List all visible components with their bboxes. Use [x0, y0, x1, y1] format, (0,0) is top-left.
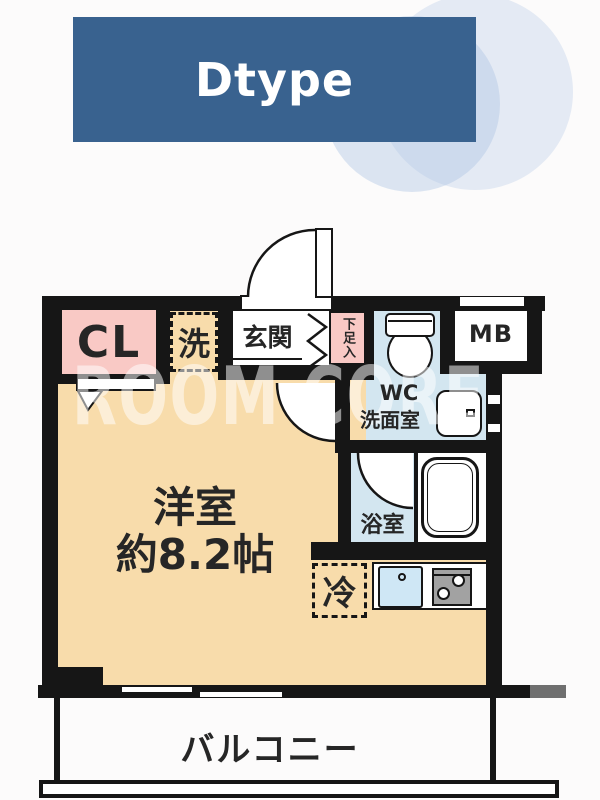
plan-type-banner: Dtype: [73, 17, 476, 142]
wall-bathroom-left: [338, 440, 351, 542]
stove-burner-icon: [437, 587, 450, 600]
side-window-slit-upper: [488, 395, 500, 404]
entrance-label: 玄関: [233, 318, 302, 354]
toilet-tank-line: [388, 320, 432, 322]
stove-edge-line: [434, 574, 470, 576]
meter-box-door-slit: [460, 297, 524, 306]
entrance-door-swing: [248, 230, 315, 297]
balcony-wall-right: [490, 698, 496, 780]
wall-bottom: [38, 685, 530, 698]
meter-box-label: MB: [455, 320, 527, 348]
wall-right: [486, 361, 502, 685]
side-window-slit-lower: [488, 424, 500, 432]
main-room-size: 約8.2帖: [90, 531, 300, 578]
refrigerator-label: 冷: [323, 566, 357, 615]
balcony-window-slat-right: [199, 691, 283, 698]
refrigerator-space-box: 冷: [312, 563, 367, 618]
entrance-door-arc: [248, 230, 315, 297]
bathtub-icon: [421, 457, 479, 538]
balcony-wall-left: [54, 698, 60, 780]
stove-burner-icon: [452, 574, 465, 587]
wc-label: WC: [368, 382, 430, 404]
sink-faucet-icon: [398, 573, 406, 581]
wall-corner-step: [58, 667, 103, 685]
main-room-label: 洋室 約8.2帖: [90, 484, 300, 578]
wall-bathroom-divider: [414, 453, 418, 542]
wall-bottom-neighbor: [530, 685, 566, 698]
balcony-label: バルコニー: [120, 722, 420, 771]
entrance-door-leaf: [315, 228, 333, 298]
toilet-tank-icon: [385, 313, 435, 337]
wall-left: [42, 296, 58, 698]
plan-type-title: Dtype: [195, 53, 354, 107]
bathroom-label: 浴室: [351, 507, 414, 539]
balcony-railing: [39, 780, 559, 798]
wall-bathroom-bottom: [311, 542, 486, 560]
balcony-window-slat-left: [121, 686, 193, 693]
main-room-name: 洋室: [90, 484, 300, 531]
washroom-label: 洗面室: [348, 404, 432, 433]
